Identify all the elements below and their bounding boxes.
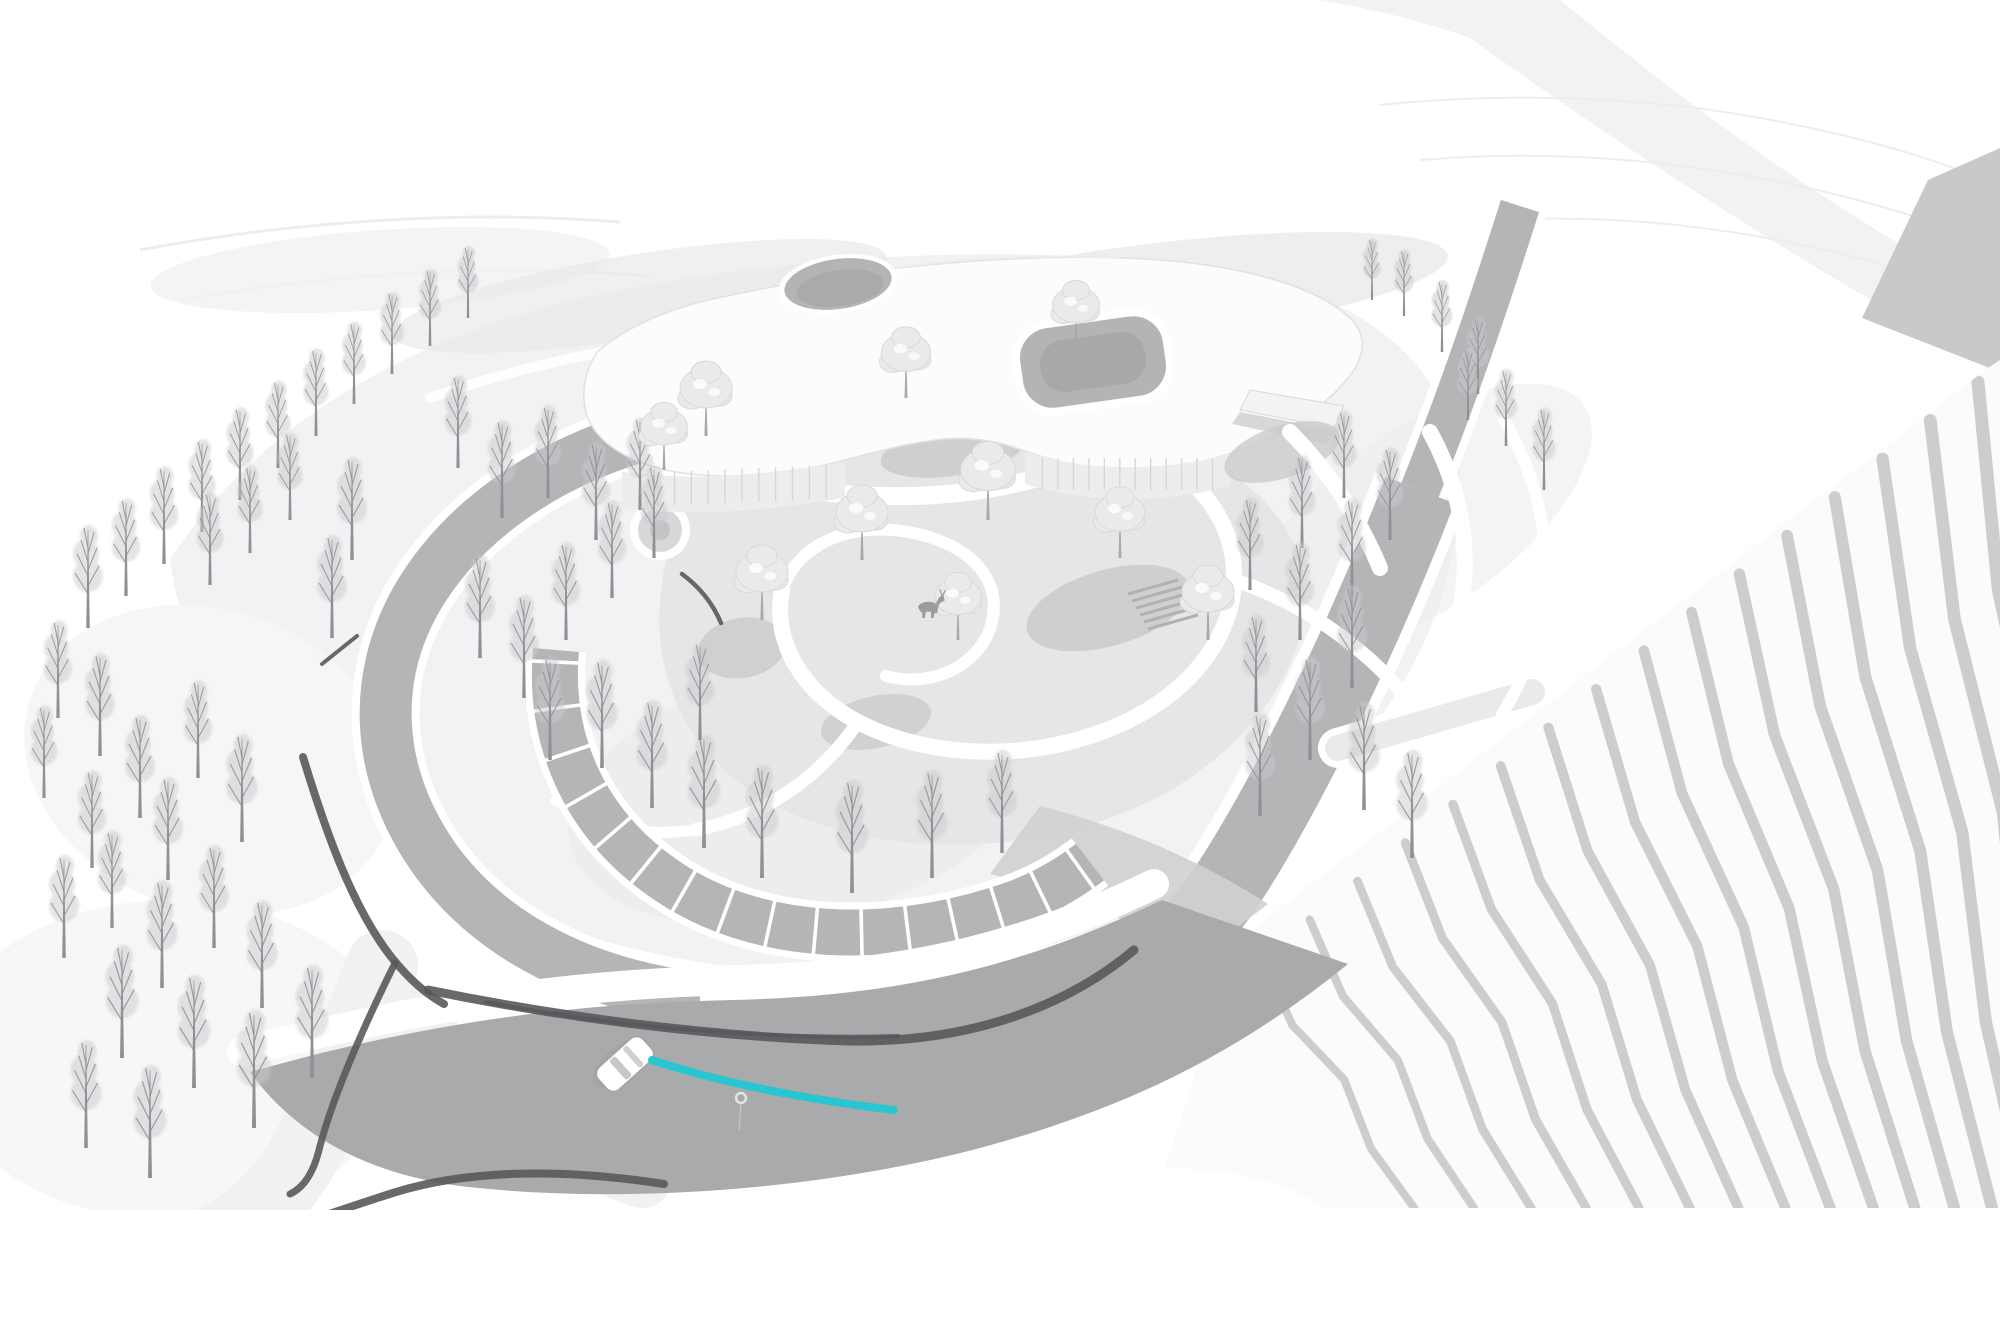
rendering-canvas <box>0 0 2000 1332</box>
parking-stall-line <box>861 908 862 956</box>
east-courtyard <box>1012 308 1175 416</box>
bottom-margin <box>0 1210 2000 1332</box>
site-plan-rendering <box>0 0 2000 1332</box>
